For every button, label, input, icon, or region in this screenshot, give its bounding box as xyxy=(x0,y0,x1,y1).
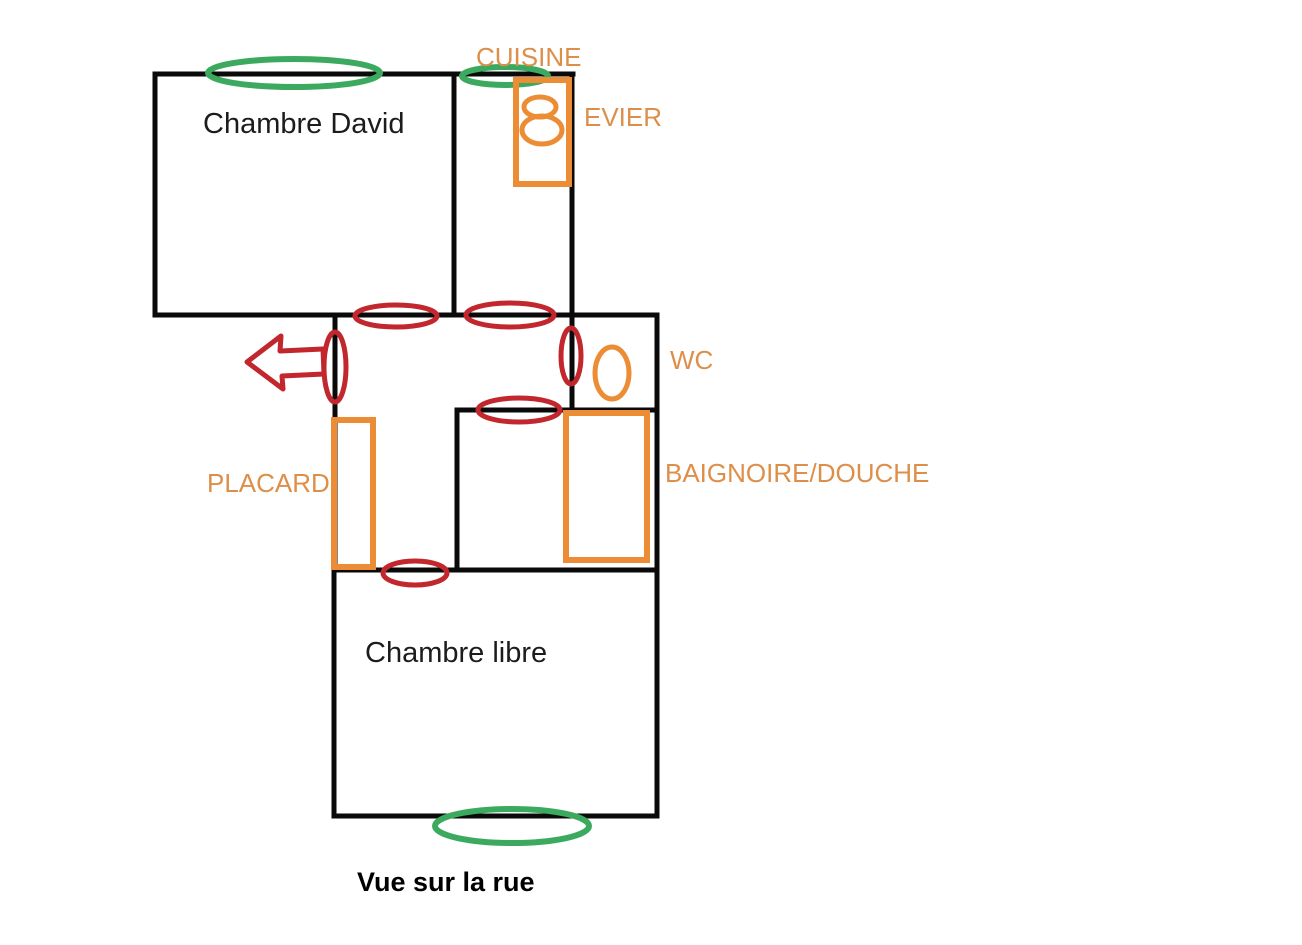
closet xyxy=(334,420,373,567)
windows xyxy=(208,59,589,843)
entry-arrow-icon xyxy=(247,336,324,389)
label-chambre-libre: Chambre libre xyxy=(365,637,547,669)
label-street-view: Vue sur la rue xyxy=(357,867,535,897)
label-placard: PLACARD xyxy=(207,468,330,498)
sink-basin-bottom xyxy=(522,116,562,144)
floor-plan-sketch: Chambre David CUISINE EVIER WC BAIGNOIRE… xyxy=(0,0,1302,945)
label-evier: EVIER xyxy=(584,102,662,132)
walls xyxy=(155,74,657,816)
doors xyxy=(247,303,581,585)
door-chambre-libre xyxy=(383,561,447,585)
bathtub xyxy=(566,413,647,560)
label-wc: WC xyxy=(670,345,713,375)
label-chambre-david: Chambre David xyxy=(203,108,404,140)
label-cuisine: CUISINE xyxy=(476,42,581,72)
label-baignoire-douche: BAIGNOIRE/DOUCHE xyxy=(665,458,929,488)
floor-plan-drawing: Chambre David CUISINE EVIER WC BAIGNOIRE… xyxy=(0,0,1302,945)
toilet xyxy=(595,347,629,399)
